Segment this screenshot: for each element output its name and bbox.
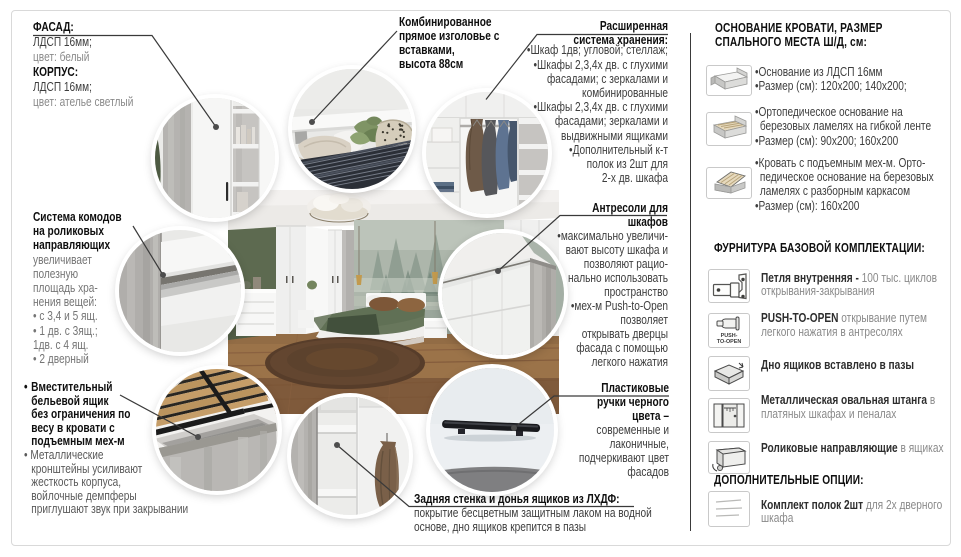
svg-text:TO-OPEN: TO-OPEN	[717, 339, 742, 345]
